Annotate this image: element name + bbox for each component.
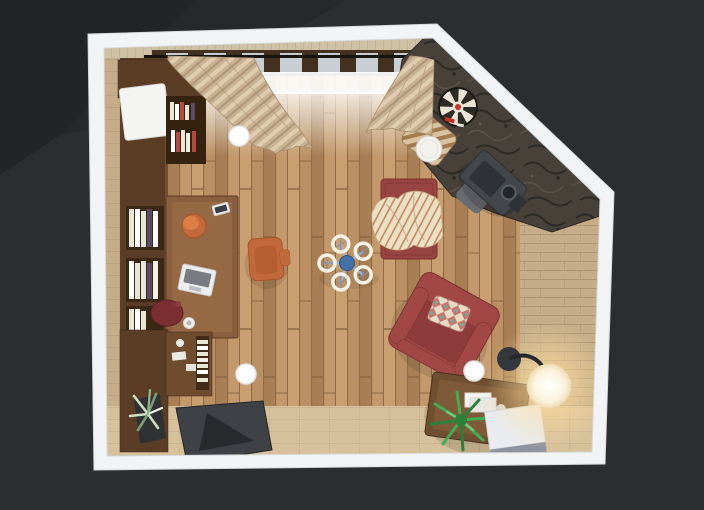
wall-shelf-books[interactable] [166,96,206,164]
desk-cup[interactable] [182,214,206,238]
dartboard[interactable] [439,88,477,127]
ceiling-light-2[interactable] [236,364,256,384]
white-box [119,83,171,140]
lamp-sphere [527,364,571,408]
floorplan-render [0,0,704,510]
ceiling-light-3[interactable] [464,361,484,381]
throw-blanket[interactable] [372,191,443,250]
round-side-table[interactable] [416,136,442,162]
ceiling-light-1[interactable] [229,126,249,146]
floorplan-viewport [0,0,704,510]
